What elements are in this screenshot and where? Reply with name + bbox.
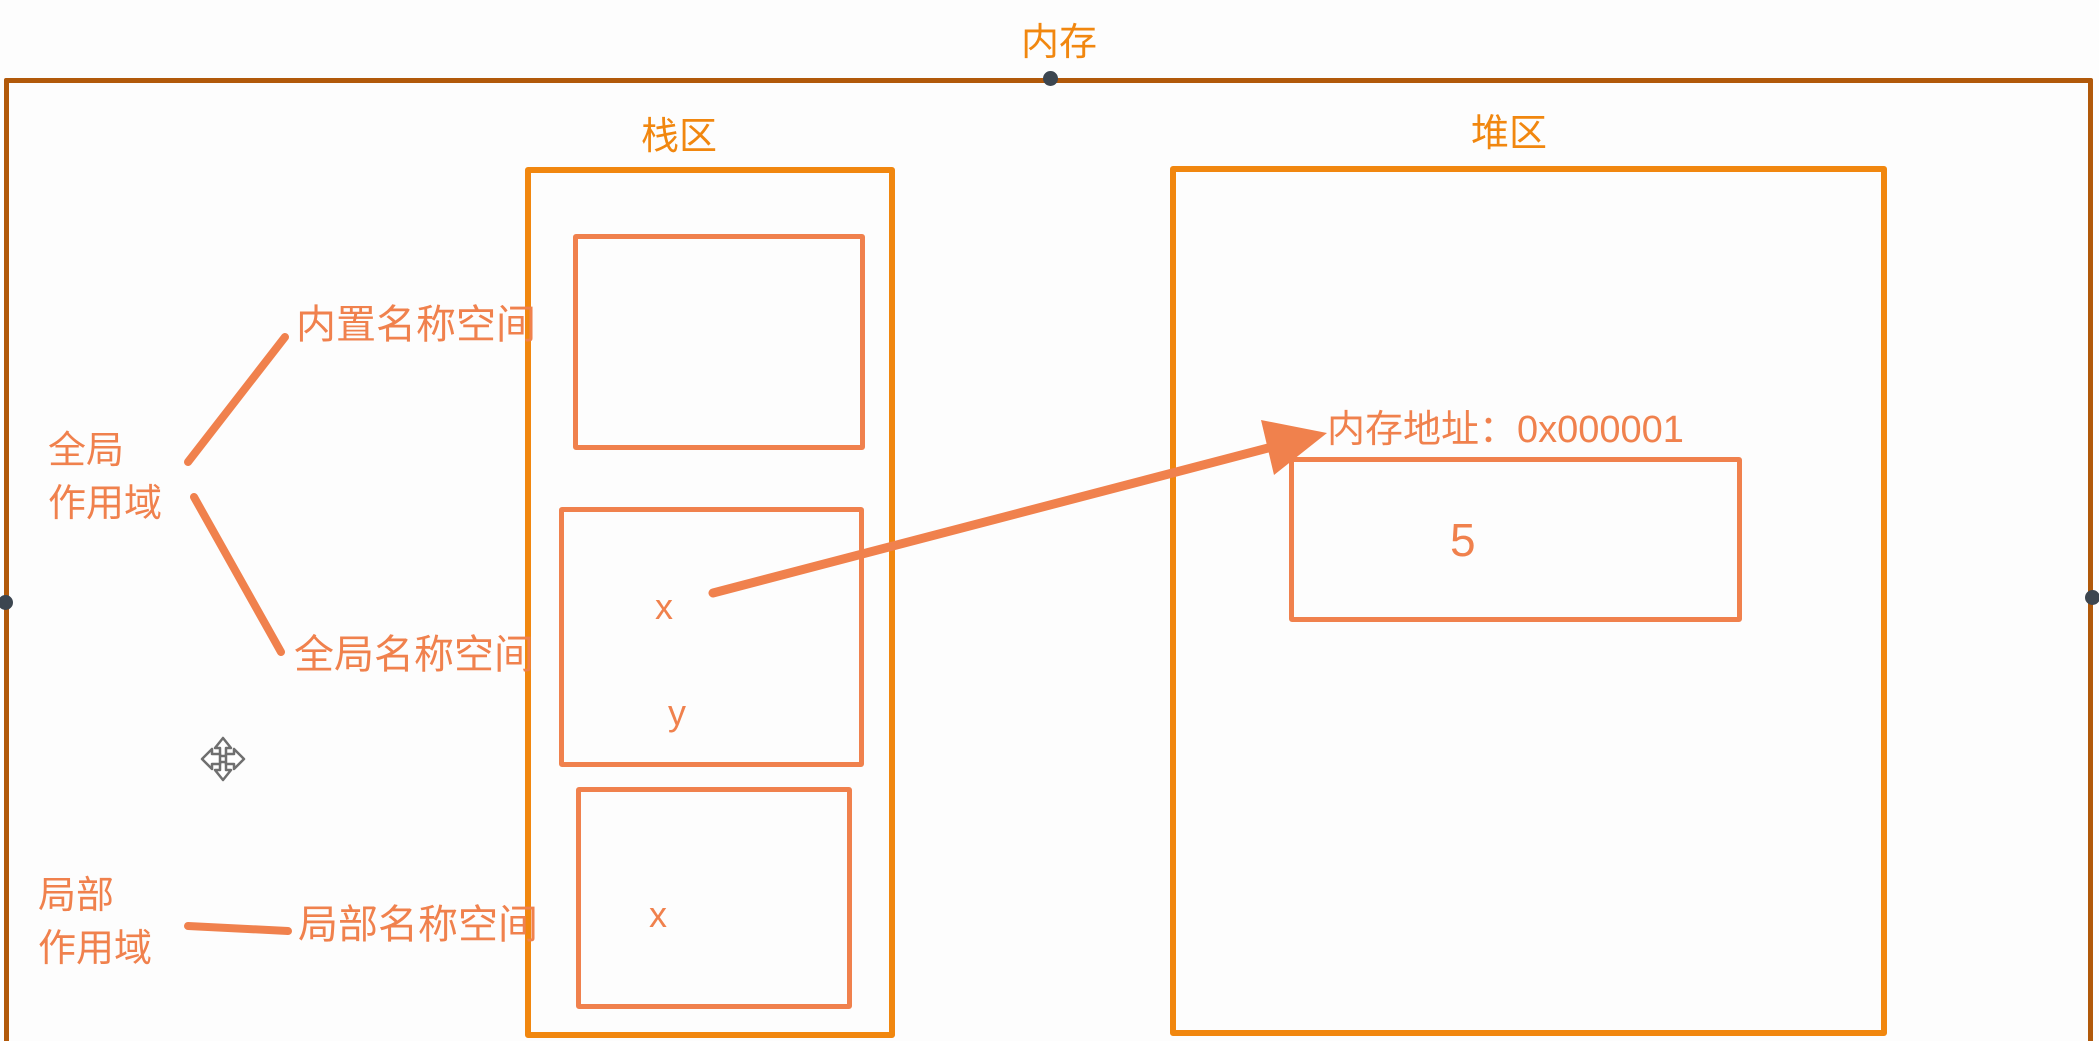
local-scope-line1: 局部 <box>38 875 114 917</box>
heap-value-box[interactable] <box>1289 457 1742 622</box>
stack-label: 栈区 <box>641 116 717 160</box>
global-scope-line1: 全局 <box>48 430 124 472</box>
builtin-namespace-label[interactable]: 内置名称空间 <box>296 302 536 348</box>
diagram-canvas: 内存 栈区 x y x 堆区 内存地址：0x000001 5 全局作用域 内置名… <box>0 0 2099 1041</box>
stack-frame-local[interactable] <box>576 787 852 1009</box>
local-scope-label[interactable]: 局部作用域 <box>38 870 152 976</box>
global-namespace-label[interactable]: 全局名称空间 <box>294 632 534 678</box>
heap-label: 堆区 <box>1471 113 1547 157</box>
global-scope-line2: 作用域 <box>48 483 162 525</box>
stack-frame-global[interactable] <box>559 507 864 767</box>
heap-value: 5 <box>1450 514 1476 567</box>
global-var-x[interactable]: x <box>655 586 673 627</box>
memory-title: 内存 <box>1021 22 1097 66</box>
heap-address-label[interactable]: 内存地址：0x000001 <box>1327 409 1684 453</box>
selection-handle-right-middle[interactable] <box>2085 590 2099 605</box>
selection-handle-top-center[interactable] <box>1043 71 1058 86</box>
global-var-y[interactable]: y <box>668 692 686 733</box>
local-var-x[interactable]: x <box>649 894 667 935</box>
global-scope-label[interactable]: 全局作用域 <box>48 425 162 531</box>
stack-frame-builtin[interactable] <box>573 234 865 450</box>
local-namespace-label[interactable]: 局部名称空间 <box>298 902 538 948</box>
local-scope-line2: 作用域 <box>38 928 152 970</box>
